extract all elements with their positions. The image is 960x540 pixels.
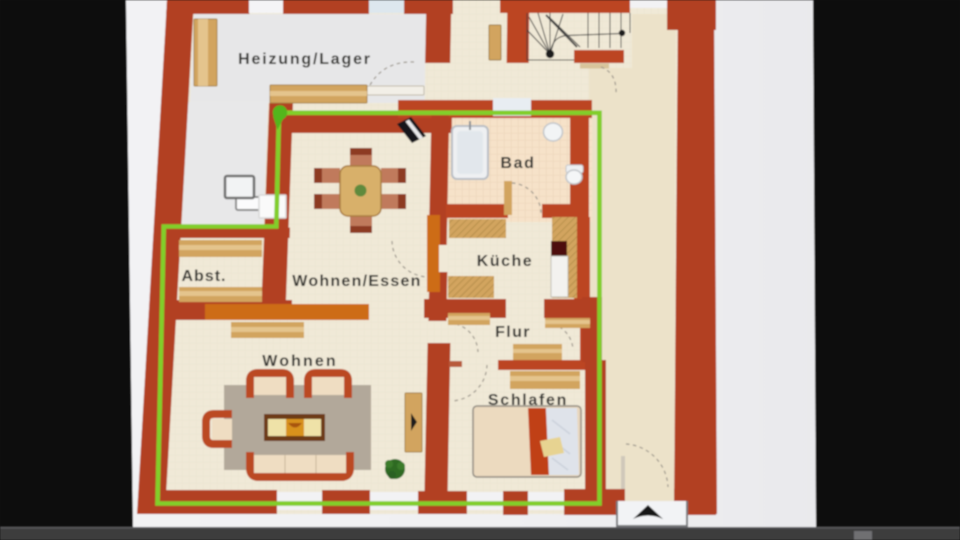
svg-text:Wohnen: Wohnen <box>262 353 337 370</box>
svg-text:Abst.: Abst. <box>182 268 227 285</box>
svg-text:Bad: Bad <box>500 155 535 172</box>
svg-text:Flur: Flur <box>495 324 531 341</box>
svg-text:Wohnen/Essen: Wohnen/Essen <box>292 273 421 290</box>
svg-text:Schlafen: Schlafen <box>488 392 568 409</box>
svg-text:Heizung/Lager: Heizung/Lager <box>238 51 372 68</box>
svg-text:Küche: Küche <box>477 253 533 270</box>
